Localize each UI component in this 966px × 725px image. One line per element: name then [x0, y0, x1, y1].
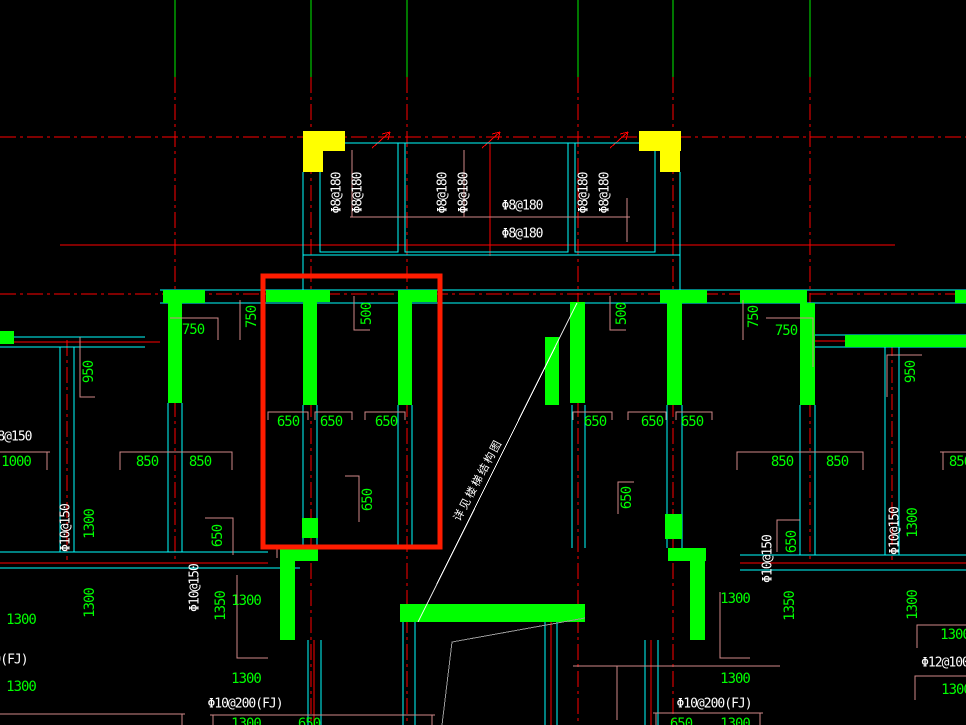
- rebar-label: Φ12@100: [921, 657, 966, 670]
- rebar-label: Φ8@180: [502, 200, 543, 213]
- dim-label: 500: [615, 303, 629, 325]
- dim-label: 500: [360, 303, 374, 325]
- dim-label: 1350: [783, 591, 797, 621]
- dim-label: 1300: [941, 683, 966, 697]
- dim-label: 850: [771, 455, 793, 469]
- rebar-label: Φ8@180: [458, 173, 471, 214]
- dim-label: 1350: [214, 591, 228, 621]
- dim-label: 1300: [720, 592, 750, 606]
- dim-label: 750: [775, 324, 797, 338]
- dim-label: 1300: [6, 613, 36, 627]
- dim-label: 650: [375, 415, 397, 429]
- dim-label: 850: [826, 455, 848, 469]
- rebar-label: Φ10@150: [189, 564, 202, 612]
- dim-label: 950: [904, 361, 918, 383]
- rebar-label: Φ8@180: [599, 173, 612, 214]
- rebar-label: Φ8@180: [352, 173, 365, 214]
- dim-label: 750: [747, 306, 761, 328]
- rebar-label: Φ10@150: [60, 504, 73, 552]
- rebar-label: Φ10@200(FJ): [0, 654, 28, 667]
- dim-label: 1300: [231, 672, 261, 686]
- wall-outlines: [0, 143, 966, 725]
- dim-label: 650: [620, 487, 634, 509]
- dim-label: 850: [189, 455, 211, 469]
- dim-label: 850: [136, 455, 158, 469]
- rebar-label: Φ10@200(FJ): [207, 698, 282, 711]
- dim-label: 650: [641, 415, 663, 429]
- rebar-label: Φ8@180: [578, 173, 591, 214]
- dim-label: 1300: [231, 717, 261, 725]
- dim-label: 750: [182, 323, 204, 337]
- rebar-label: Φ8@150: [0, 431, 31, 444]
- dim-label: 650: [670, 717, 692, 725]
- dim-label: 650: [281, 549, 303, 563]
- rebar-label: Φ8@180: [331, 173, 344, 214]
- dim-label: 950: [82, 361, 96, 383]
- rebar-label: Φ10@200(FJ): [676, 698, 751, 711]
- dim-label: 1300: [83, 588, 97, 618]
- dim-label: 1300: [720, 672, 750, 686]
- dim-label: 850: [949, 455, 966, 469]
- dim-label: 1300: [720, 717, 750, 725]
- dim-label: 650: [211, 525, 225, 547]
- dim-label: 1300: [940, 628, 966, 642]
- rebar-label: Φ8@180: [502, 228, 543, 241]
- dim-label: 1300: [906, 508, 920, 538]
- dim-label: 650: [320, 415, 342, 429]
- dim-label: 650: [785, 531, 799, 553]
- drawing-geometry: [0, 0, 966, 725]
- dim-label: 1300: [83, 509, 97, 539]
- rebar-label: Φ8@180: [437, 173, 450, 214]
- dim-label: 1000: [1, 455, 31, 469]
- dimension-lines: [0, 150, 966, 725]
- rebar-label: Φ10@150: [889, 507, 902, 555]
- dim-label: 650: [584, 415, 606, 429]
- dim-label: 1300: [231, 594, 261, 608]
- dim-label: 650: [298, 717, 320, 725]
- dim-label: 650: [361, 489, 375, 511]
- dim-label: 1300: [906, 590, 920, 620]
- stair-lines: [418, 303, 585, 725]
- dim-label: 650: [681, 415, 703, 429]
- dim-label: 750: [245, 306, 259, 328]
- rebar-label: Φ10@150: [762, 535, 775, 583]
- dim-label: 1300: [6, 680, 36, 694]
- dim-label: 650: [277, 415, 299, 429]
- cad-drawing-viewport[interactable]: Φ8@180 Φ8@180 Φ8@180 Φ8@180 Φ8@180 Φ8@18…: [0, 0, 966, 725]
